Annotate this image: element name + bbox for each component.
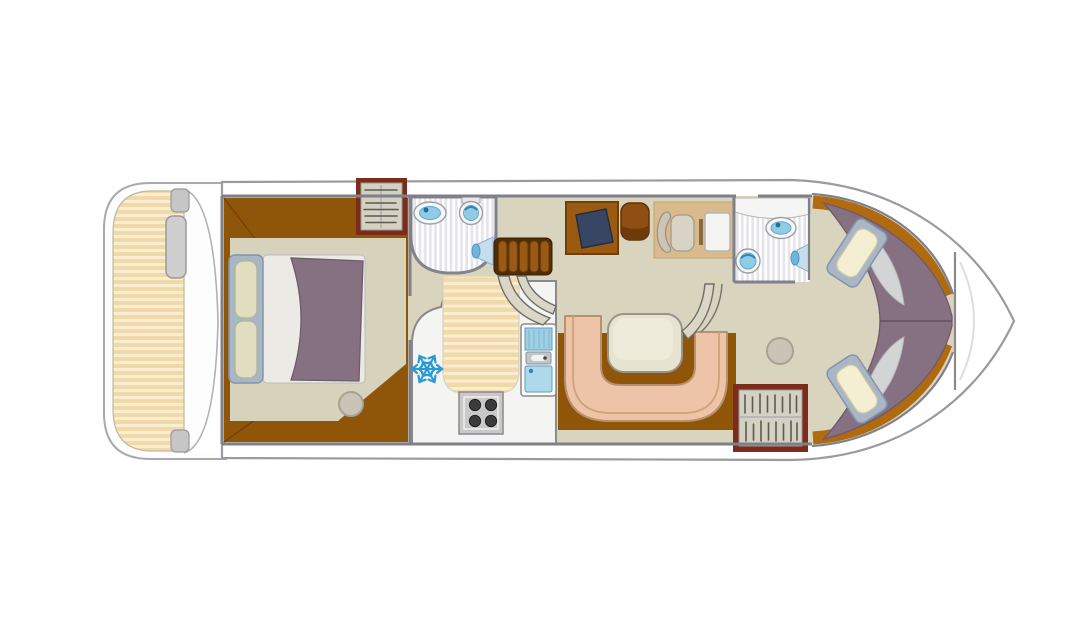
stern-deck (104, 183, 226, 459)
bow-wardrobe (733, 384, 808, 452)
washbasin-icon (766, 218, 796, 239)
double-bed (229, 255, 365, 383)
toilet-icon (460, 197, 483, 225)
bathroom-counter (735, 198, 810, 219)
stern-step-bottom (171, 430, 189, 452)
stair-treads (499, 241, 549, 272)
kitchen-sink-icon (521, 324, 556, 396)
steering-column (699, 219, 703, 245)
aft-cabin (224, 178, 408, 442)
washbasin-icon (414, 202, 446, 224)
stove-burners-icon (459, 392, 503, 434)
helm-console (705, 213, 730, 251)
bed-pillow (235, 321, 257, 378)
toilet-icon (736, 249, 760, 273)
boat-floor-plan (0, 0, 1092, 640)
stern-step-top (171, 189, 189, 212)
bed-mattress (291, 258, 363, 381)
floor-plan-canvas (0, 0, 1092, 640)
dinette-table-top (613, 318, 673, 360)
bed-pillow (235, 261, 257, 318)
aft-cabin-stool (339, 392, 363, 416)
helm-seat (671, 215, 694, 251)
stern-helm-seat (166, 216, 186, 278)
forward-bathroom (735, 198, 810, 282)
aft-bathroom (411, 197, 496, 273)
bow-cabin-stool (767, 338, 793, 364)
aft-wardrobe (356, 178, 407, 235)
chart-icon (576, 209, 613, 248)
